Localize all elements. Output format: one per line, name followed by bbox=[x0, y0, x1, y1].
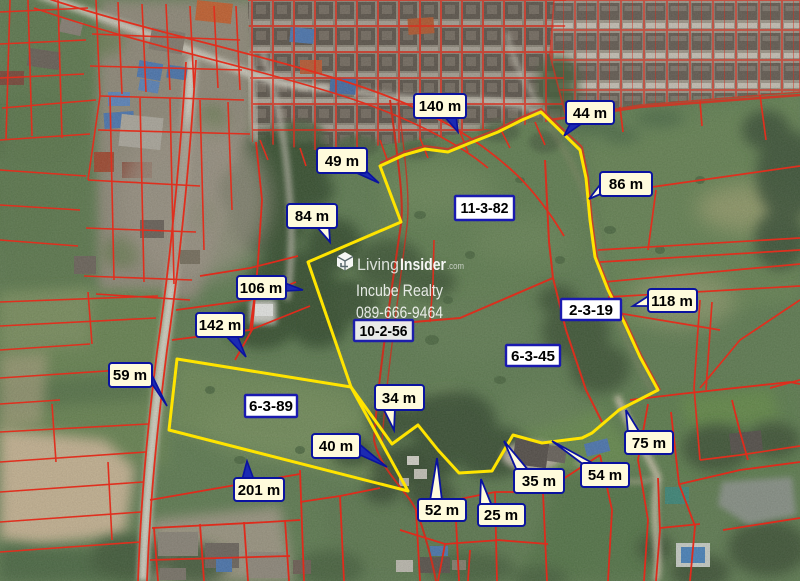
svg-text:6-3-45: 6-3-45 bbox=[511, 348, 555, 365]
svg-text:.com: .com bbox=[447, 261, 464, 271]
svg-text:25 m: 25 m bbox=[484, 507, 518, 524]
svg-text:40 m: 40 m bbox=[319, 438, 353, 455]
svg-text:54 m: 54 m bbox=[588, 467, 622, 484]
svg-text:49 m: 49 m bbox=[325, 153, 359, 170]
svg-text:11-3-82: 11-3-82 bbox=[461, 200, 509, 217]
svg-text:Incube Realty: Incube Realty bbox=[356, 281, 443, 300]
svg-text:6-3-89: 6-3-89 bbox=[249, 398, 293, 415]
svg-text:10-2-56: 10-2-56 bbox=[360, 323, 408, 340]
svg-text:201 m: 201 m bbox=[238, 482, 281, 499]
svg-text:2-3-19: 2-3-19 bbox=[569, 302, 613, 319]
svg-text:34 m: 34 m bbox=[382, 390, 416, 407]
svg-text:44 m: 44 m bbox=[573, 105, 607, 122]
svg-text:59 m: 59 m bbox=[113, 367, 147, 384]
svg-text:106 m: 106 m bbox=[240, 280, 283, 297]
svg-text:35 m: 35 m bbox=[522, 473, 556, 490]
svg-text:84 m: 84 m bbox=[295, 208, 329, 225]
svg-text:140 m: 140 m bbox=[419, 98, 462, 115]
svg-text:52 m: 52 m bbox=[425, 502, 459, 519]
svg-text:75 m: 75 m bbox=[632, 435, 666, 452]
svg-text:Insider: Insider bbox=[400, 256, 446, 274]
svg-text:Living: Living bbox=[357, 256, 399, 274]
svg-text:118 m: 118 m bbox=[651, 293, 693, 310]
svg-text:142 m: 142 m bbox=[199, 317, 242, 334]
svg-text:86 m: 86 m bbox=[609, 176, 643, 193]
